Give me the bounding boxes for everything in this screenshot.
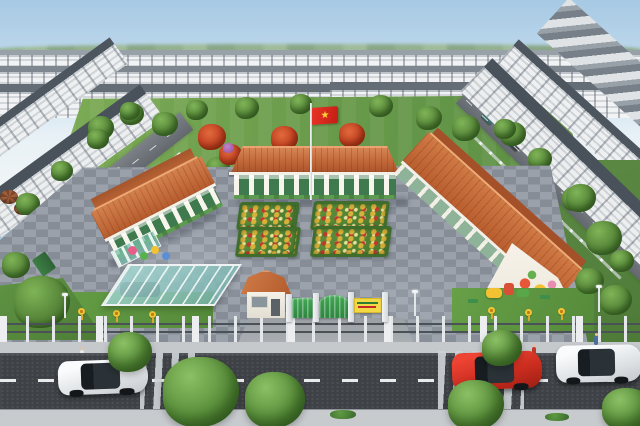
playground-figure [140, 252, 148, 260]
gate-pillar [382, 292, 388, 322]
hedge-bush [545, 413, 569, 421]
vietnam-flag: ★ [312, 106, 338, 125]
sidewalk-foreground [0, 409, 640, 426]
car-glass [577, 348, 615, 376]
street-lamp [414, 293, 416, 316]
school-building-center-roof [231, 146, 399, 173]
playground-equipment-green [517, 289, 529, 297]
playground-figure [151, 246, 159, 254]
playground-slide-red [504, 283, 514, 295]
gatehouse-door [271, 299, 280, 316]
car-wheel [120, 388, 135, 395]
street-tree [602, 388, 640, 426]
pedestrian [594, 336, 598, 345]
street-tree [245, 372, 305, 426]
school-building-center-planters [234, 195, 396, 199]
gatehouse-window [251, 296, 268, 308]
school-sign [354, 298, 382, 313]
bench [468, 299, 478, 303]
hedge-bush [330, 410, 356, 419]
sign-text-line-red [358, 306, 376, 308]
flower-cutout [525, 309, 532, 316]
car-wheel [514, 383, 529, 391]
street-lamp [64, 296, 66, 318]
side-gate [292, 298, 314, 318]
flower-cutout [558, 308, 565, 315]
street-tree [448, 380, 504, 426]
perimeter-fence [0, 316, 640, 345]
playground-figure [128, 246, 137, 255]
car-wheel [615, 376, 629, 384]
car-wheel [69, 390, 84, 397]
flower-bed [310, 226, 392, 257]
flower-cutout [78, 308, 85, 315]
flower-cutout [488, 307, 495, 314]
playground-slide-yellow [486, 288, 502, 298]
bench [540, 295, 550, 299]
main-gate [319, 295, 349, 318]
car-wheel [567, 377, 581, 385]
playground-figure [162, 252, 170, 260]
street-lamp [598, 288, 600, 312]
flower-bed [236, 202, 300, 230]
aerial-render-scene: ★ [0, 0, 640, 426]
flag-star-icon: ★ [321, 110, 330, 122]
flower-bed [235, 227, 301, 257]
car-white-right [556, 344, 640, 382]
street-tree [163, 357, 239, 426]
sign-text-line-green [357, 302, 378, 304]
